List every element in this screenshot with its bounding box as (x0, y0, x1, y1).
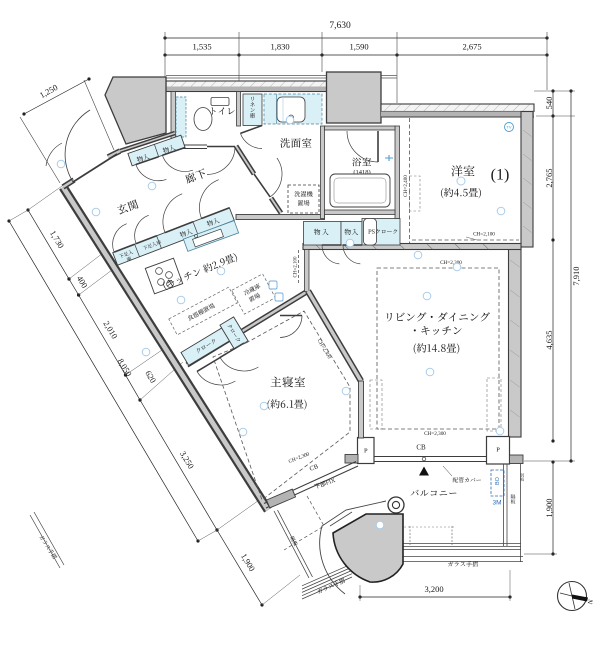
svg-text:1,830: 1,830 (270, 41, 289, 51)
svg-text:CH=2,300: CH=2,300 (424, 431, 446, 437)
svg-text:7,630: 7,630 (329, 21, 351, 31)
svg-text:1,590: 1,590 (349, 41, 368, 51)
svg-text:4,635: 4,635 (544, 330, 554, 349)
svg-text:2,675: 2,675 (462, 41, 481, 51)
svg-text:(1): (1) (491, 167, 510, 184)
svg-text:CH=2,400: CH=2,400 (403, 175, 409, 197)
svg-text:CB: CB (416, 444, 426, 452)
svg-text:3M: 3M (492, 500, 501, 507)
svg-text:CH=2,100: CH=2,100 (473, 232, 495, 238)
svg-text:3,200: 3,200 (424, 584, 443, 594)
svg-text:P: P (496, 446, 500, 453)
svg-text:BO: BO (495, 476, 501, 485)
svg-text:P: P (364, 447, 368, 454)
svg-text:CH=2,100: CH=2,100 (294, 256, 299, 278)
svg-text:1,900: 1,900 (544, 498, 554, 517)
svg-text:1,535: 1,535 (192, 41, 211, 51)
svg-text:540: 540 (544, 97, 554, 110)
svg-text:7,910: 7,910 (571, 266, 581, 285)
svg-text:2,765: 2,765 (544, 168, 554, 187)
svg-text:TV: TV (506, 125, 511, 130)
